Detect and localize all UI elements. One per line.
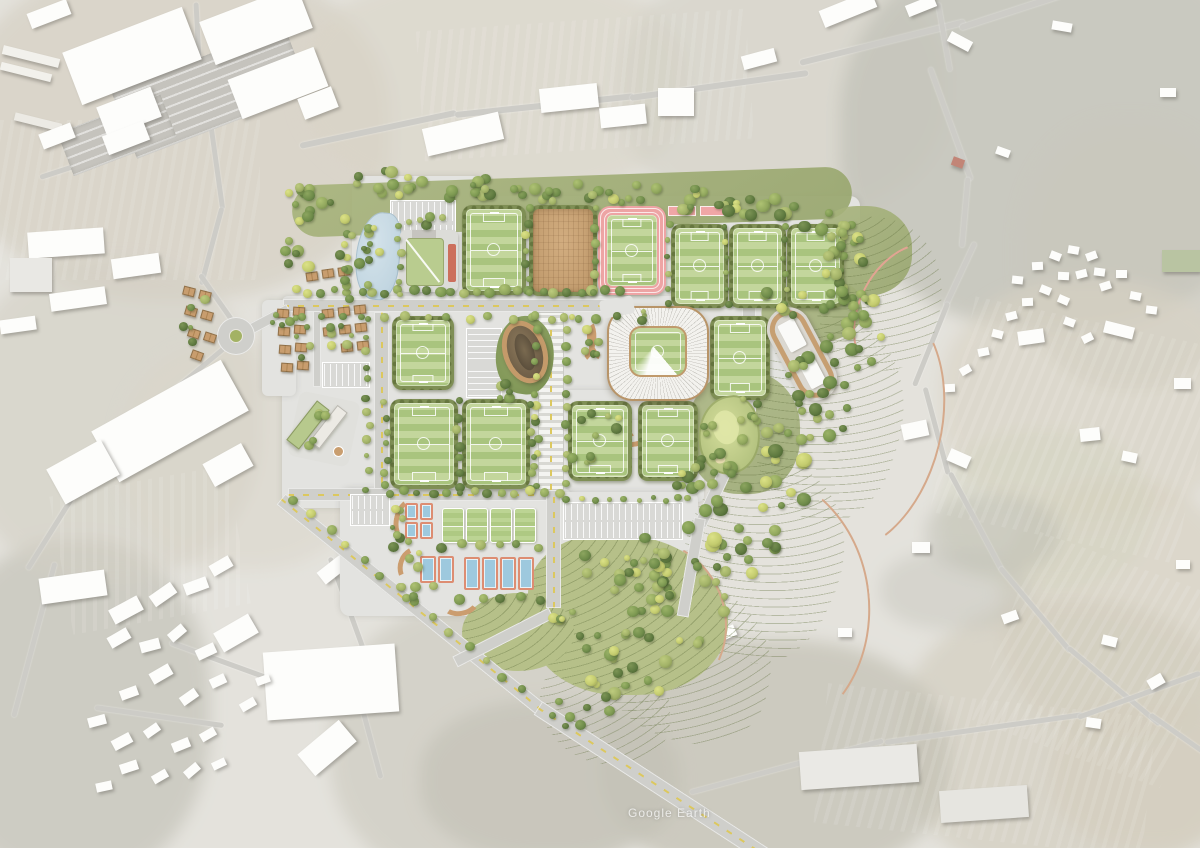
tree: [482, 489, 492, 499]
tree: [416, 550, 423, 556]
tree: [839, 425, 847, 433]
tree: [285, 237, 293, 245]
tree: [633, 627, 645, 638]
tree: [756, 200, 769, 213]
tree: [806, 434, 813, 441]
tree: [737, 416, 745, 424]
tree: [725, 301, 733, 308]
tree: [365, 316, 371, 322]
tree: [396, 279, 402, 284]
tree: [774, 423, 784, 433]
tree: [481, 185, 489, 192]
tree: [388, 542, 399, 553]
tree: [649, 558, 660, 569]
tree: [518, 685, 526, 693]
tree: [590, 224, 599, 232]
tree: [526, 276, 532, 281]
tree: [341, 241, 348, 248]
tree: [385, 166, 398, 178]
tree: [298, 313, 306, 321]
tree: [805, 390, 814, 398]
tree: [735, 543, 748, 555]
tree: [456, 469, 464, 477]
tree: [386, 490, 394, 498]
tree: [838, 228, 847, 237]
tree: [284, 259, 294, 268]
tree: [395, 191, 403, 199]
tree: [855, 345, 863, 353]
tree: [654, 686, 664, 695]
tree: [465, 642, 475, 651]
tree: [591, 314, 601, 324]
tree: [768, 444, 783, 458]
tree: [531, 454, 537, 460]
tree: [540, 288, 548, 295]
tree: [384, 457, 391, 464]
tree: [361, 556, 370, 564]
tree: [371, 225, 378, 231]
tree: [362, 487, 368, 493]
tree: [840, 381, 849, 389]
tree: [327, 341, 336, 350]
tree: [285, 189, 293, 197]
tree: [798, 221, 810, 233]
tree: [703, 430, 711, 437]
tree: [796, 434, 808, 445]
tree: [665, 237, 671, 242]
tree: [526, 204, 534, 212]
tree: [339, 313, 346, 320]
tree: [561, 420, 570, 429]
tree: [746, 567, 758, 579]
tree: [525, 486, 535, 496]
tree: [349, 333, 354, 338]
tree: [318, 313, 326, 320]
tree: [188, 325, 194, 330]
tree: [658, 548, 670, 559]
tree: [524, 220, 533, 228]
tree: [592, 258, 599, 265]
tree: [718, 606, 730, 617]
tree: [651, 495, 656, 500]
tree: [454, 594, 465, 605]
tree: [560, 313, 569, 321]
tree: [694, 480, 705, 490]
tree: [707, 532, 722, 547]
tree: [761, 427, 772, 438]
tree: [302, 261, 314, 273]
tree: [743, 536, 752, 545]
tree: [288, 496, 298, 506]
tree: [780, 256, 785, 261]
tree: [836, 241, 846, 251]
tree: [534, 544, 543, 553]
tree: [758, 503, 767, 512]
tree: [454, 414, 464, 423]
tree: [435, 287, 446, 298]
tree: [627, 606, 638, 617]
tree: [380, 290, 389, 299]
tree: [459, 289, 469, 299]
tree: [582, 325, 591, 334]
tree: [585, 339, 593, 347]
tree: [375, 248, 383, 256]
tree: [842, 327, 856, 340]
tree: [528, 469, 536, 476]
tree: [604, 706, 614, 716]
tree: [593, 205, 599, 211]
tree: [399, 515, 406, 522]
tree: [740, 396, 746, 402]
tree: [761, 287, 773, 298]
tree: [452, 425, 461, 434]
tree: [843, 404, 851, 412]
tree: [581, 347, 590, 355]
tree: [303, 289, 313, 298]
tree: [745, 209, 757, 220]
tree: [587, 409, 596, 418]
tree: [659, 655, 672, 668]
tree: [367, 288, 377, 298]
tree: [644, 633, 653, 642]
tree: [559, 616, 565, 622]
tree: [292, 285, 300, 293]
tree: [666, 221, 674, 228]
tree: [362, 435, 371, 443]
tree: [361, 246, 367, 251]
tree: [358, 314, 365, 320]
tree: [397, 292, 403, 298]
tree: [809, 403, 823, 416]
tree: [711, 495, 723, 507]
tree: [526, 289, 533, 296]
tree: [573, 179, 583, 189]
tree: [555, 698, 563, 706]
tree: [326, 323, 335, 332]
tree: [784, 429, 792, 436]
tree: [393, 531, 401, 538]
tree: [280, 246, 290, 256]
tree: [827, 232, 836, 241]
tree: [877, 333, 885, 341]
tree: [404, 174, 412, 181]
tree: [579, 550, 591, 562]
tree: [830, 268, 842, 279]
tree: [416, 176, 428, 187]
tree: [410, 582, 421, 592]
tree: [861, 295, 869, 302]
tree: [442, 489, 450, 497]
tree: [403, 184, 413, 194]
tree: [521, 231, 530, 239]
tree: [724, 255, 729, 260]
tree: [610, 586, 619, 594]
tree: [583, 704, 591, 711]
tree: [627, 662, 638, 673]
tree: [309, 437, 317, 444]
tree: [417, 217, 423, 223]
tree: [753, 400, 762, 408]
tree: [400, 311, 410, 320]
tree: [397, 249, 406, 258]
tree: [499, 284, 511, 295]
tree: [858, 310, 870, 321]
tree: [823, 251, 834, 261]
tree: [600, 285, 610, 294]
tree: [712, 578, 720, 585]
tree: [609, 646, 619, 656]
tree: [562, 480, 570, 488]
tree: [636, 196, 644, 204]
tree: [362, 408, 370, 416]
tree: [651, 183, 662, 194]
tree: [601, 692, 612, 702]
tree: [665, 271, 672, 277]
tree: [531, 391, 538, 397]
tree: [409, 285, 419, 295]
tree: [723, 270, 729, 276]
tree: [830, 358, 839, 366]
tree: [708, 421, 718, 430]
tree: [663, 498, 669, 504]
tree: [292, 201, 299, 208]
tree: [354, 258, 365, 269]
tree: [744, 555, 753, 564]
tree: [699, 504, 712, 516]
tree: [457, 539, 466, 548]
tree: [361, 395, 369, 403]
tree: [823, 429, 836, 441]
tree: [425, 212, 435, 222]
tree: [620, 496, 626, 502]
tree: [745, 195, 755, 204]
tree: [605, 189, 612, 196]
tree: [475, 540, 486, 550]
tree: [798, 291, 807, 299]
tree: [380, 469, 388, 477]
tree: [579, 496, 585, 501]
tree: [594, 351, 600, 357]
tree: [397, 264, 404, 271]
tree: [521, 260, 529, 268]
tree: [615, 415, 622, 422]
tree: [561, 342, 571, 351]
tree: [365, 467, 373, 474]
tree: [405, 554, 414, 563]
tree: [548, 288, 558, 298]
tree: [848, 301, 859, 311]
tree: [751, 414, 758, 420]
tree: [413, 490, 420, 496]
tree: [707, 479, 717, 489]
tree: [867, 294, 880, 307]
tree: [513, 286, 522, 295]
tree: [788, 360, 800, 371]
tree: [644, 676, 653, 684]
tree: [471, 487, 479, 494]
tree: [769, 193, 781, 205]
tree: [399, 486, 409, 495]
tree: [665, 286, 671, 292]
tree: [590, 270, 599, 279]
tree: [398, 583, 406, 591]
tree: [797, 493, 811, 506]
tree: [789, 311, 798, 319]
tree: [455, 454, 463, 462]
tree: [782, 223, 789, 230]
tree: [540, 488, 549, 497]
tree: [615, 286, 625, 296]
tree: [498, 489, 506, 497]
tree: [611, 423, 622, 433]
tree: [693, 639, 703, 648]
tree: [827, 333, 834, 340]
tree: [500, 379, 510, 389]
tree: [436, 543, 447, 553]
tree: [327, 525, 337, 535]
tree: [576, 632, 584, 639]
tree: [562, 288, 571, 297]
tree: [361, 347, 370, 355]
tree: [650, 605, 660, 614]
tree: [527, 428, 535, 436]
tree: [270, 320, 275, 325]
tree: [429, 582, 438, 590]
tree: [826, 289, 836, 299]
tree: [582, 568, 593, 578]
tree: [684, 495, 691, 501]
tree: [594, 632, 602, 639]
tree: [446, 185, 458, 197]
google-earth-watermark: Google Earth: [628, 806, 711, 820]
tree: [676, 637, 684, 644]
tree: [496, 541, 504, 549]
tree: [585, 675, 597, 686]
tree: [591, 239, 600, 248]
tree: [637, 316, 647, 325]
tree: [292, 250, 300, 258]
tree: [456, 397, 463, 404]
tree: [799, 362, 807, 370]
tree: [687, 204, 694, 211]
tree: [690, 185, 699, 194]
tree: [709, 453, 716, 460]
tree: [321, 411, 330, 420]
tree: [363, 365, 370, 372]
tree: [421, 220, 432, 230]
tree: [473, 288, 482, 296]
tree: [826, 300, 835, 308]
tree: [516, 592, 526, 602]
tree: [789, 202, 799, 211]
tree: [825, 209, 833, 217]
tree: [340, 276, 349, 285]
tree: [567, 453, 577, 463]
tree: [353, 180, 361, 188]
tree: [722, 224, 728, 230]
tree: [737, 434, 749, 445]
tree: [655, 595, 664, 604]
tree: [678, 470, 685, 477]
tree: [722, 205, 734, 217]
tree: [375, 572, 384, 581]
tree: [338, 323, 344, 329]
tree: [786, 488, 796, 498]
tree: [639, 533, 650, 544]
aerial-masterplan-view: Google Earth: [0, 0, 1200, 848]
tree: [769, 525, 781, 536]
tree: [383, 440, 389, 446]
tree: [699, 575, 711, 587]
tree: [562, 496, 569, 503]
tree: [384, 429, 391, 436]
tree: [341, 541, 349, 548]
tree: [293, 315, 299, 321]
tree: [273, 312, 279, 318]
tree: [512, 540, 520, 548]
tree: [564, 434, 571, 441]
tree: [483, 312, 491, 320]
tree: [784, 287, 789, 292]
tree: [390, 525, 396, 531]
tree: [723, 553, 731, 561]
tree: [387, 179, 399, 190]
tree: [531, 414, 538, 420]
tree: [624, 555, 630, 561]
tree: [497, 395, 503, 401]
vegetation-layer: [0, 0, 1200, 848]
tree: [613, 668, 623, 677]
tree: [569, 609, 575, 615]
tree: [331, 286, 338, 293]
tree: [294, 334, 299, 339]
tree: [187, 304, 195, 311]
tree: [380, 399, 386, 405]
tree: [364, 453, 370, 458]
tree: [665, 300, 672, 306]
tree: [592, 497, 599, 504]
tree: [497, 673, 507, 683]
tree: [682, 521, 695, 533]
tree: [582, 644, 592, 653]
tree: [592, 432, 599, 439]
tree: [364, 375, 371, 382]
tree: [479, 594, 488, 602]
tree: [634, 583, 644, 593]
tree: [533, 325, 542, 334]
tree: [577, 416, 585, 424]
tree: [529, 183, 541, 194]
tree: [760, 476, 772, 488]
tree: [637, 498, 642, 503]
tree: [348, 232, 355, 239]
tree: [335, 250, 345, 260]
tree: [820, 340, 834, 353]
tree: [523, 248, 529, 254]
tree: [429, 613, 437, 620]
tree: [815, 223, 828, 236]
tree: [316, 289, 325, 298]
tree: [565, 712, 575, 721]
tree: [822, 269, 831, 277]
tree: [817, 388, 828, 399]
tree: [605, 413, 611, 419]
tree: [533, 373, 540, 380]
tree: [394, 236, 401, 242]
tree: [536, 596, 545, 605]
tree: [406, 219, 413, 225]
tree: [531, 358, 538, 365]
